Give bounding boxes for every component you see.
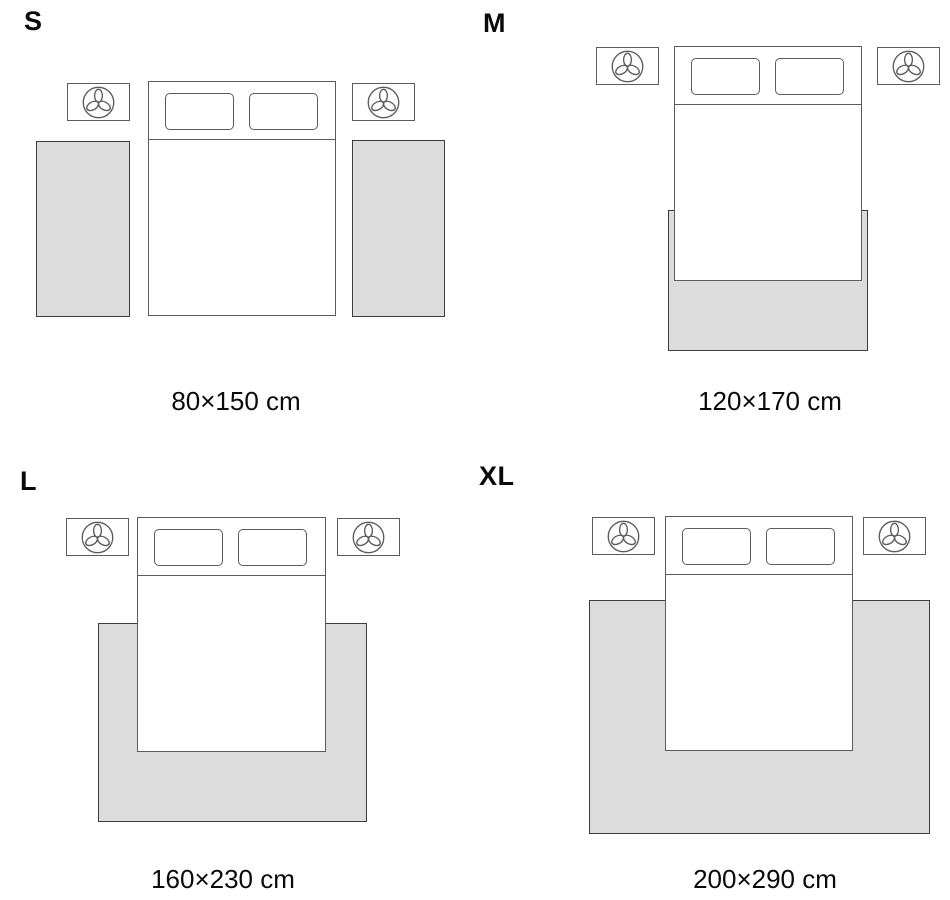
bed (665, 516, 853, 751)
nightstand-right (337, 518, 400, 556)
bed-headboard (675, 47, 861, 105)
rug-runner-left (36, 141, 130, 317)
rug-size-guide: S 80×150 cm (0, 0, 950, 900)
pillow-left (682, 528, 751, 565)
size-label-l: L (20, 468, 37, 495)
nightstand-right (863, 517, 926, 555)
pillow-left (691, 58, 760, 95)
dimension-label-s: 80×150 cm (86, 388, 386, 414)
rug-runner-right (352, 140, 445, 317)
pillow-right (249, 93, 318, 130)
dimension-label-xl: 200×290 cm (615, 866, 915, 892)
dimension-label-m: 120×170 cm (620, 388, 920, 414)
plant-icon (352, 521, 385, 554)
size-label-s: S (24, 8, 43, 35)
pillow-left (165, 93, 234, 130)
nightstand-right (352, 83, 415, 121)
plant-icon (611, 50, 644, 83)
pillow-right (775, 58, 844, 95)
nightstand-left (66, 518, 129, 556)
plant-icon (367, 86, 400, 119)
pillow-right (238, 529, 307, 566)
plant-icon (82, 86, 115, 119)
bed (137, 517, 326, 752)
dimension-label-l: 160×230 cm (73, 866, 373, 892)
bed-headboard (149, 82, 335, 140)
size-label-m: M (483, 10, 506, 37)
nightstand-right (877, 47, 940, 85)
nightstand-left (596, 47, 659, 85)
bed-headboard (138, 518, 325, 576)
plant-icon (607, 520, 640, 553)
plant-icon (892, 50, 925, 83)
nightstand-left (67, 83, 130, 121)
nightstand-left (592, 517, 655, 555)
plant-icon (81, 521, 114, 554)
pillow-right (766, 528, 835, 565)
bed (148, 81, 336, 316)
bed (674, 46, 862, 281)
pillow-left (154, 529, 223, 566)
size-label-xl: XL (479, 463, 515, 490)
plant-icon (878, 520, 911, 553)
bed-headboard (666, 517, 852, 575)
